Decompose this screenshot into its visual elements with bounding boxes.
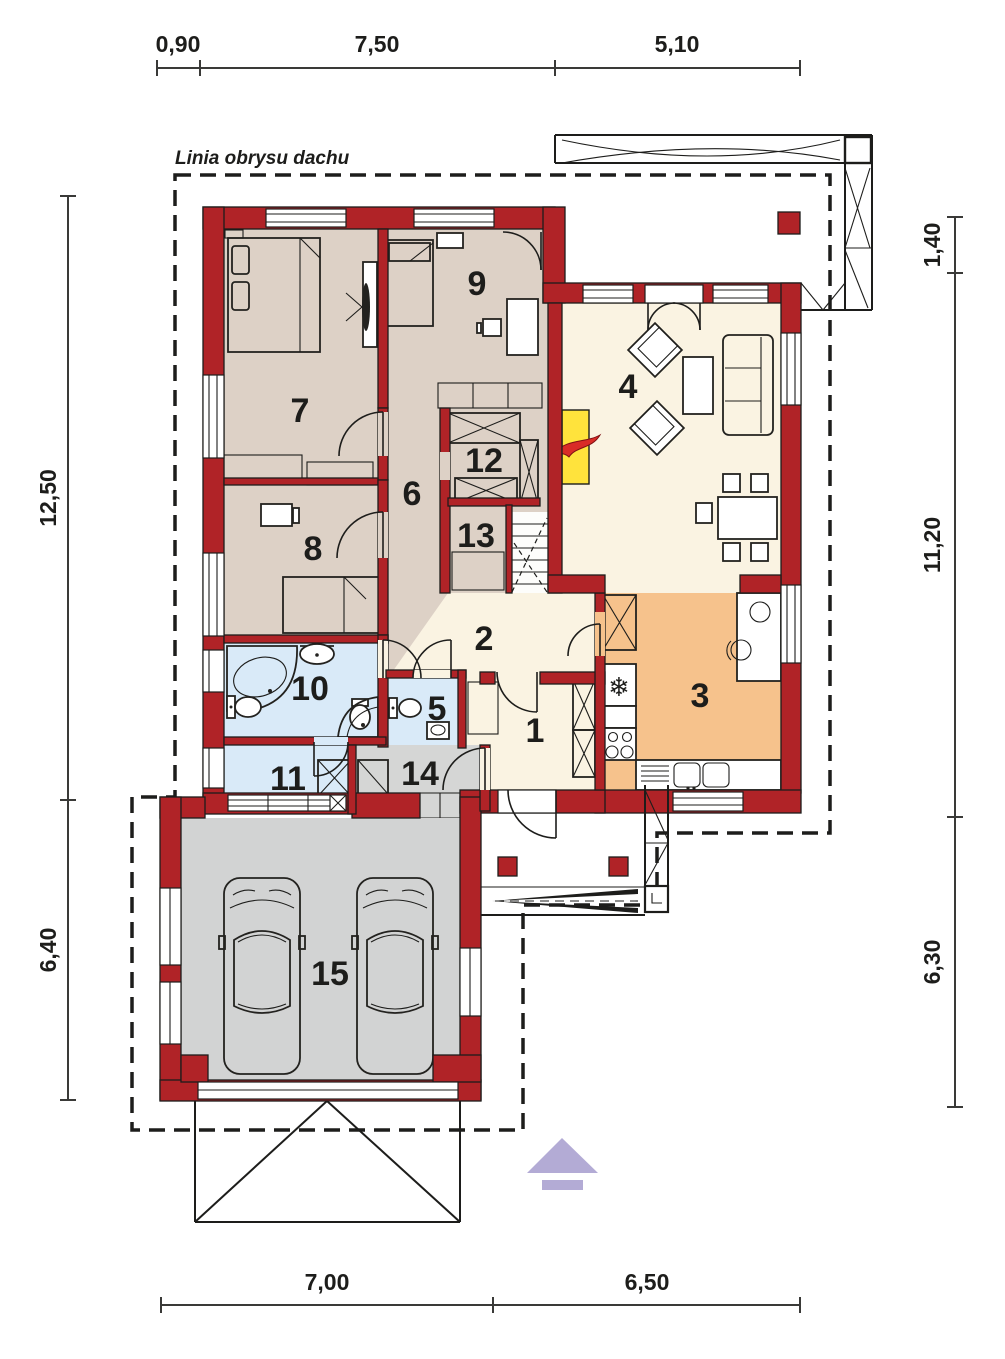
porch-step-edge: [492, 901, 638, 913]
toilet-5-icon: [389, 698, 421, 718]
terrace-corner-post: [845, 137, 871, 163]
porch-post: [645, 886, 668, 912]
dim-top-1: 7,50: [355, 31, 400, 57]
terrace-column: [778, 212, 800, 234]
window: [713, 285, 768, 303]
window: [266, 209, 346, 227]
room-label-7: 7: [291, 392, 310, 430]
porch-column: [498, 857, 517, 876]
window: [160, 982, 181, 1044]
toilet-icon: [227, 696, 261, 718]
floor-plan-sheet: ❄: [0, 0, 1005, 1359]
dim-right-2: 6,30: [919, 940, 945, 985]
dimension-right: 1,40 11,20 6,30: [919, 217, 963, 1107]
room-label-15: 15: [311, 955, 349, 993]
dim-left-1: 6,40: [35, 928, 61, 973]
window: [203, 748, 224, 788]
dim-bottom-1: 6,50: [625, 1269, 670, 1295]
window: [781, 585, 801, 663]
room-label-10: 10: [291, 670, 329, 708]
window: [781, 333, 801, 405]
front-door-opening: [498, 790, 556, 813]
room-label-4: 4: [619, 368, 638, 406]
fridge-snowflake-icon: ❄: [608, 673, 630, 703]
stove-icon: [603, 728, 636, 760]
dimension-left: 12,50 6,40: [35, 196, 76, 1100]
entrance-arrow-icon: [527, 1138, 598, 1190]
room-label-9: 9: [468, 265, 487, 303]
window: [203, 650, 224, 692]
porch-column: [609, 857, 628, 876]
window: [673, 792, 743, 811]
room-8-floor: [224, 485, 380, 635]
room-label-1: 1: [526, 712, 545, 750]
garage-apron: [195, 1101, 460, 1222]
window: [203, 553, 224, 636]
dim-bottom-0: 7,00: [305, 1269, 350, 1295]
room-label-3: 3: [691, 677, 710, 715]
floor-plan-drawing: ❄: [0, 0, 1005, 1359]
coffee-table: [683, 357, 713, 414]
shelf: [437, 233, 463, 248]
dim-left-0: 12,50: [35, 469, 61, 527]
living-kitchen-opening: [605, 575, 740, 593]
desk-8: [261, 504, 299, 526]
window: [460, 948, 481, 1016]
room-label-6: 6: [403, 475, 422, 513]
dim-top-0: 0,90: [156, 31, 201, 57]
room-label-2: 2: [475, 620, 494, 658]
porch-step-edge: [492, 889, 638, 901]
window: [160, 888, 181, 965]
dim-right-1: 11,20: [919, 517, 945, 573]
dim-right-0: 1,40: [919, 223, 945, 268]
room-label-13: 13: [457, 517, 495, 555]
dimension-bottom: 7,00 6,50: [161, 1269, 800, 1313]
dimension-top: 0,90 7,50 5,10: [156, 31, 800, 76]
room-label-8: 8: [304, 530, 323, 568]
room-7-floor: [224, 229, 378, 478]
roof-outline-label: Linia obrysu dachu: [175, 148, 350, 169]
room-label-11: 11: [270, 760, 306, 798]
window: [203, 375, 224, 458]
window: [583, 285, 633, 303]
washbasin-icon: [300, 644, 334, 664]
room-label-12: 12: [465, 442, 503, 480]
dim-top-2: 5,10: [655, 31, 700, 57]
terrace-door-opening: [645, 285, 703, 303]
window: [414, 209, 494, 227]
room-label-5: 5: [428, 690, 447, 728]
room-label-14: 14: [401, 755, 439, 793]
